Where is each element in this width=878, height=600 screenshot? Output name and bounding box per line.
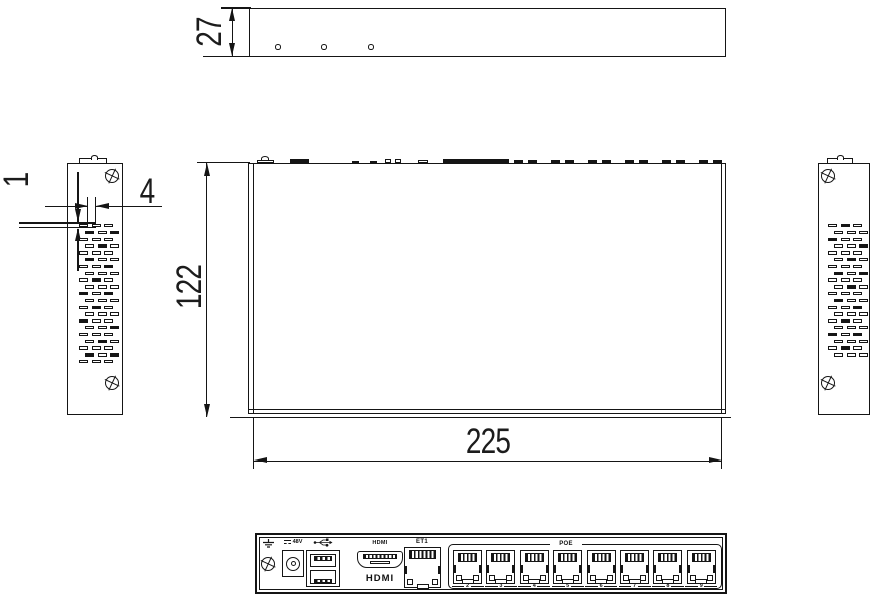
hdmi-notch bbox=[370, 561, 390, 564]
vent-slot bbox=[859, 353, 868, 356]
vent-slot bbox=[853, 224, 862, 227]
eth-port bbox=[486, 550, 515, 584]
vent-slot bbox=[79, 251, 88, 254]
eth-port-number: 5 bbox=[552, 583, 584, 589]
vent-slot bbox=[853, 346, 862, 349]
vent-slot bbox=[828, 306, 837, 309]
connector-bump bbox=[676, 160, 685, 164]
vent-slot bbox=[79, 360, 88, 363]
drawing-detail bbox=[326, 543, 329, 546]
port-number-dash bbox=[537, 586, 550, 587]
inner-edge-line bbox=[721, 164, 722, 413]
rj45-detail bbox=[613, 565, 616, 573]
port-number-dash bbox=[604, 586, 617, 587]
rj45-detail bbox=[506, 575, 512, 581]
vent-slot bbox=[841, 224, 850, 227]
side-top-dome bbox=[91, 155, 98, 160]
vent-slot bbox=[841, 265, 850, 268]
vent-slot bbox=[98, 340, 107, 343]
extension-line bbox=[87, 197, 88, 225]
vent-slot bbox=[847, 326, 856, 329]
vent-slot bbox=[853, 292, 862, 295]
connector-bump bbox=[551, 160, 560, 164]
vent-slot bbox=[98, 285, 107, 288]
port-number-dash bbox=[704, 586, 717, 587]
vent-slot bbox=[79, 333, 88, 336]
vent-slot bbox=[859, 244, 868, 247]
vent-slot bbox=[79, 265, 88, 268]
rj45-detail bbox=[525, 553, 544, 562]
vent-slot bbox=[853, 238, 862, 241]
connector-bump bbox=[639, 160, 648, 164]
hdmi-connector bbox=[357, 551, 403, 568]
rj45-detail bbox=[558, 553, 577, 562]
front-led-hole bbox=[368, 44, 374, 50]
rj45-detail bbox=[692, 553, 711, 562]
connector-bump bbox=[370, 161, 377, 164]
arrowhead-icon bbox=[204, 163, 210, 176]
screw-icon bbox=[105, 169, 119, 183]
rj45-detail bbox=[453, 565, 456, 573]
vent-slot bbox=[92, 265, 101, 268]
vent-slot bbox=[828, 319, 837, 322]
rj45-detail bbox=[458, 553, 477, 562]
vent-slot bbox=[853, 278, 862, 281]
rj45-detail bbox=[592, 553, 611, 562]
vent-slot bbox=[847, 353, 856, 356]
rj45-detail bbox=[553, 565, 556, 573]
vent-slot bbox=[853, 319, 862, 322]
vent-slot bbox=[79, 306, 88, 309]
vent-slot bbox=[841, 333, 850, 336]
rj45-detail bbox=[432, 579, 438, 585]
vent-slot bbox=[98, 272, 107, 275]
vent-slot bbox=[841, 292, 850, 295]
vent-slot bbox=[828, 238, 837, 241]
vent-slot bbox=[847, 299, 856, 302]
arrowhead-icon bbox=[204, 404, 210, 417]
vent-slot bbox=[92, 251, 101, 254]
rj45-detail bbox=[573, 575, 579, 581]
rj45-detail bbox=[687, 565, 690, 573]
port-number-dash bbox=[619, 586, 632, 587]
vent-slot bbox=[853, 306, 862, 309]
connector-bump bbox=[395, 159, 401, 163]
eth-single-label: ET1 bbox=[401, 538, 443, 546]
vent-slot bbox=[79, 278, 88, 281]
extension-line bbox=[203, 56, 251, 57]
rj45-detail bbox=[404, 566, 407, 574]
connector-bump bbox=[443, 159, 509, 164]
eth-port-number: 3 bbox=[485, 583, 517, 589]
usb-contacts bbox=[314, 556, 332, 561]
vent-slot bbox=[104, 306, 113, 309]
usb-contacts bbox=[314, 579, 332, 584]
vent-slot bbox=[859, 231, 868, 234]
vent-slot bbox=[841, 346, 850, 349]
vent-slot bbox=[85, 312, 94, 315]
vent-slot bbox=[110, 312, 119, 315]
rj45-detail bbox=[407, 579, 413, 585]
eth-group-label: POE bbox=[550, 540, 582, 548]
vent-slot bbox=[847, 312, 856, 315]
vent-slot bbox=[104, 292, 113, 295]
arrowhead-icon bbox=[75, 209, 81, 222]
vent-slot bbox=[104, 333, 113, 336]
arrowhead-icon bbox=[75, 203, 88, 209]
rj45-detail bbox=[673, 575, 679, 581]
vent-slot bbox=[110, 272, 119, 275]
drawing-detail bbox=[314, 541, 317, 544]
connector-bump bbox=[662, 160, 671, 164]
front-view-outline bbox=[249, 8, 726, 57]
rj45-detail bbox=[607, 575, 613, 581]
port-number-dash bbox=[452, 586, 465, 587]
vent-slot bbox=[847, 231, 856, 234]
connector-bump bbox=[699, 160, 708, 164]
front-led-hole bbox=[275, 44, 281, 50]
vent-slot bbox=[104, 346, 113, 349]
vent-slot bbox=[85, 285, 94, 288]
connector-bump bbox=[385, 159, 391, 163]
connector-bump bbox=[565, 160, 574, 164]
port-number-dash bbox=[638, 586, 651, 587]
eth-port bbox=[553, 550, 582, 584]
eth-port-single bbox=[404, 547, 441, 588]
connector-bump bbox=[261, 156, 269, 162]
side-top-dome bbox=[837, 155, 844, 160]
vent-slot bbox=[104, 251, 113, 254]
vent-slot bbox=[834, 285, 843, 288]
rj45-detail bbox=[587, 565, 590, 573]
inner-edge-line bbox=[253, 164, 254, 413]
vent-slot bbox=[847, 258, 856, 261]
vent-slot bbox=[98, 244, 107, 247]
rj45-detail bbox=[520, 565, 523, 573]
vent-slot bbox=[104, 265, 113, 268]
vent-slot bbox=[859, 258, 868, 261]
vent-slot bbox=[92, 224, 101, 227]
vent-slot bbox=[834, 244, 843, 247]
vent-slot bbox=[841, 319, 850, 322]
inner-edge-line bbox=[249, 409, 725, 410]
vent-slot bbox=[853, 265, 862, 268]
vent-slot bbox=[98, 326, 107, 329]
rj45-detail bbox=[438, 566, 441, 574]
connector-bump bbox=[528, 160, 537, 164]
vent-slot bbox=[92, 278, 101, 281]
vent-slot bbox=[853, 333, 862, 336]
dc-polarity-icon bbox=[284, 540, 291, 544]
vent-slot bbox=[834, 272, 843, 275]
rj45-detail bbox=[640, 575, 646, 581]
port-number-dash bbox=[685, 586, 698, 587]
drawing-detail bbox=[326, 538, 329, 541]
power-label-text: 48V bbox=[293, 539, 303, 545]
connector-bump bbox=[290, 159, 309, 164]
vent-slot bbox=[828, 251, 837, 254]
rj45-detail bbox=[512, 565, 515, 573]
vent-slot bbox=[859, 299, 868, 302]
vent-slot bbox=[859, 285, 868, 288]
eth-port-number: 4 bbox=[518, 583, 550, 589]
vent-slot bbox=[828, 346, 837, 349]
eth-port bbox=[520, 550, 549, 584]
vent-slot bbox=[110, 340, 119, 343]
eth-port-number: 6 bbox=[585, 583, 617, 589]
rj45-detail bbox=[579, 565, 582, 573]
port-number-dash bbox=[485, 586, 498, 587]
eth-port bbox=[620, 550, 649, 584]
dimension-vent-width: 4 bbox=[133, 176, 160, 208]
rj45-detail bbox=[625, 553, 644, 562]
vent-slot bbox=[85, 353, 94, 356]
connector-bump bbox=[418, 160, 428, 164]
vent-slot bbox=[104, 360, 113, 363]
technical-drawing-canvas: 27 1 4 122 225 bbox=[0, 0, 878, 600]
rj45-detail bbox=[620, 565, 623, 573]
extension-line bbox=[230, 417, 731, 418]
rj45-detail bbox=[546, 565, 549, 573]
vent-slot bbox=[85, 326, 94, 329]
vent-slot bbox=[104, 238, 113, 241]
connector-bump bbox=[602, 160, 611, 164]
port-number-dash bbox=[518, 586, 531, 587]
vent-slot bbox=[79, 346, 88, 349]
rj45-detail bbox=[713, 565, 716, 573]
vent-slot bbox=[847, 244, 856, 247]
connector-bump bbox=[625, 160, 634, 164]
screw-icon bbox=[105, 376, 119, 390]
vent-slot bbox=[847, 272, 856, 275]
vent-slot bbox=[110, 299, 119, 302]
vent-slot bbox=[79, 224, 88, 227]
arrowhead-icon bbox=[709, 457, 722, 463]
vent-slot bbox=[98, 312, 107, 315]
drawing-detail bbox=[330, 540, 333, 544]
vent-slot bbox=[98, 231, 107, 234]
vent-slot bbox=[834, 258, 843, 261]
vent-slot bbox=[828, 292, 837, 295]
vent-slot bbox=[110, 244, 119, 247]
connector-bump bbox=[713, 160, 722, 164]
vent-slot bbox=[841, 251, 850, 254]
hdmi-pins bbox=[363, 554, 397, 559]
rj45-detail bbox=[540, 575, 546, 581]
ground-screw-icon bbox=[261, 557, 275, 571]
port-number-dash bbox=[504, 586, 517, 587]
vent-slot bbox=[85, 299, 94, 302]
vent-slot bbox=[853, 251, 862, 254]
vent-slot bbox=[110, 258, 119, 261]
vent-slot bbox=[859, 272, 868, 275]
vent-slot bbox=[79, 238, 88, 241]
vent-slot bbox=[110, 231, 119, 234]
dimension-body-width: 225 bbox=[459, 425, 517, 459]
vent-slot bbox=[85, 244, 94, 247]
vent-slot bbox=[98, 353, 107, 356]
vent-slot bbox=[92, 319, 101, 322]
screw-icon bbox=[821, 376, 835, 390]
vent-slot bbox=[85, 272, 94, 275]
extension-line bbox=[95, 197, 96, 225]
vent-slot bbox=[104, 319, 113, 322]
vent-slot bbox=[834, 231, 843, 234]
eth-port-number: 7 bbox=[619, 583, 651, 589]
vent-slot bbox=[828, 224, 837, 227]
vent-slot bbox=[92, 333, 101, 336]
vent-slot bbox=[110, 285, 119, 288]
vent-slot bbox=[828, 265, 837, 268]
vent-slot bbox=[859, 340, 868, 343]
vent-slot bbox=[104, 224, 113, 227]
vent-slot bbox=[92, 346, 101, 349]
vent-slot bbox=[98, 258, 107, 261]
vent-slot bbox=[847, 340, 856, 343]
usb-icon bbox=[313, 538, 333, 547]
rj45-detail bbox=[486, 565, 489, 573]
rj45-detail bbox=[417, 584, 429, 589]
vent-slot bbox=[85, 258, 94, 261]
vent-slot bbox=[834, 353, 843, 356]
extension-line bbox=[221, 7, 251, 8]
vent-slot bbox=[92, 360, 101, 363]
dc-jack-pin bbox=[291, 561, 296, 566]
rj45-detail bbox=[707, 575, 713, 581]
port-number-dash bbox=[552, 586, 565, 587]
vent-slot bbox=[104, 278, 113, 281]
vent-slot bbox=[828, 278, 837, 281]
vent-slot bbox=[859, 326, 868, 329]
eth-port-number: 2 bbox=[452, 583, 484, 589]
vent-slot bbox=[92, 292, 101, 295]
screw-icon bbox=[821, 169, 835, 183]
vent-slot bbox=[110, 326, 119, 329]
vent-slot bbox=[841, 238, 850, 241]
rj45-detail bbox=[409, 550, 436, 559]
rj45-detail bbox=[479, 565, 482, 573]
connector-bump bbox=[352, 161, 359, 164]
eth-port bbox=[587, 550, 616, 584]
arrowhead-icon bbox=[254, 457, 267, 463]
power-label: 48V bbox=[272, 537, 314, 546]
vent-slot bbox=[834, 312, 843, 315]
dimension-vent-pitch: 1 bbox=[1, 166, 33, 193]
vent-slot bbox=[85, 340, 94, 343]
vent-slot bbox=[92, 306, 101, 309]
dimension-body-depth: 122 bbox=[173, 258, 207, 316]
vent-slot bbox=[834, 299, 843, 302]
eth-port-number: 8 bbox=[652, 583, 684, 589]
rj45-detail bbox=[491, 553, 510, 562]
connector-bump bbox=[514, 160, 523, 164]
rj45-detail bbox=[679, 565, 682, 573]
hdmi-logo: HDMI bbox=[350, 573, 410, 584]
vent-slot bbox=[834, 326, 843, 329]
port-number-dash bbox=[571, 586, 584, 587]
vent-slot bbox=[841, 278, 850, 281]
vent-slot bbox=[98, 299, 107, 302]
vent-slot bbox=[841, 306, 850, 309]
vent-slot bbox=[79, 319, 88, 322]
rj45-detail bbox=[473, 575, 479, 581]
vent-slot bbox=[828, 333, 837, 336]
dimension-front-height: 27 bbox=[188, 14, 232, 49]
vent-slot bbox=[92, 238, 101, 241]
vent-slot bbox=[85, 231, 94, 234]
eth-port bbox=[453, 550, 482, 584]
eth-port bbox=[653, 550, 682, 584]
vent-slot bbox=[834, 340, 843, 343]
eth-port bbox=[687, 550, 716, 584]
vent-slot bbox=[859, 312, 868, 315]
port-number-dash bbox=[585, 586, 598, 587]
port-number-dash bbox=[652, 586, 665, 587]
rj45-detail bbox=[653, 565, 656, 573]
rj45-detail bbox=[658, 553, 677, 562]
eth-port-number: 9 bbox=[685, 583, 717, 589]
port-number-dash bbox=[471, 586, 484, 587]
connector-bump bbox=[588, 160, 597, 164]
port-number-dash bbox=[671, 586, 684, 587]
rj45-detail bbox=[646, 565, 649, 573]
vent-slot bbox=[79, 292, 88, 295]
top-view-outline bbox=[248, 163, 726, 414]
front-led-hole bbox=[321, 44, 327, 50]
hdmi-port-label: HDMI bbox=[356, 539, 404, 547]
vent-slot bbox=[847, 285, 856, 288]
vent-slot bbox=[110, 353, 119, 356]
